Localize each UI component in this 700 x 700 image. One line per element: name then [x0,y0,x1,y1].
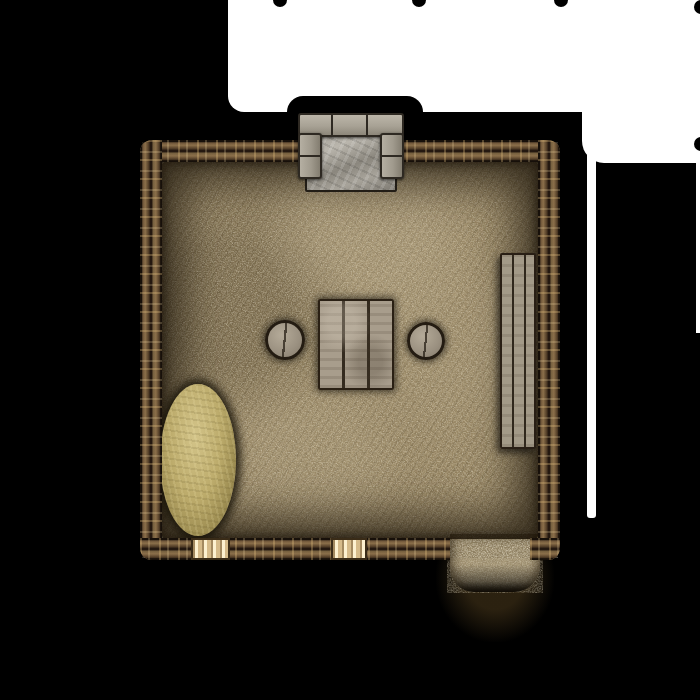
page-background-sliver [696,100,700,333]
table [318,299,394,390]
map-canvas [0,0,700,700]
wall-west [140,140,162,560]
page-background-strip [587,100,596,518]
bench [500,253,536,449]
stool-left [265,320,305,360]
window-south-west [191,538,230,560]
page-background-region-right [582,0,700,163]
hay-pile [160,384,236,536]
window-south-east [331,538,367,560]
wall-south-corner [530,538,560,560]
wall-south [140,538,450,560]
stool-right [407,322,445,360]
path-fade [450,534,540,592]
fireplace-stones-left [298,133,322,179]
wall-east [538,140,560,560]
fireplace-stones-right [380,133,404,179]
